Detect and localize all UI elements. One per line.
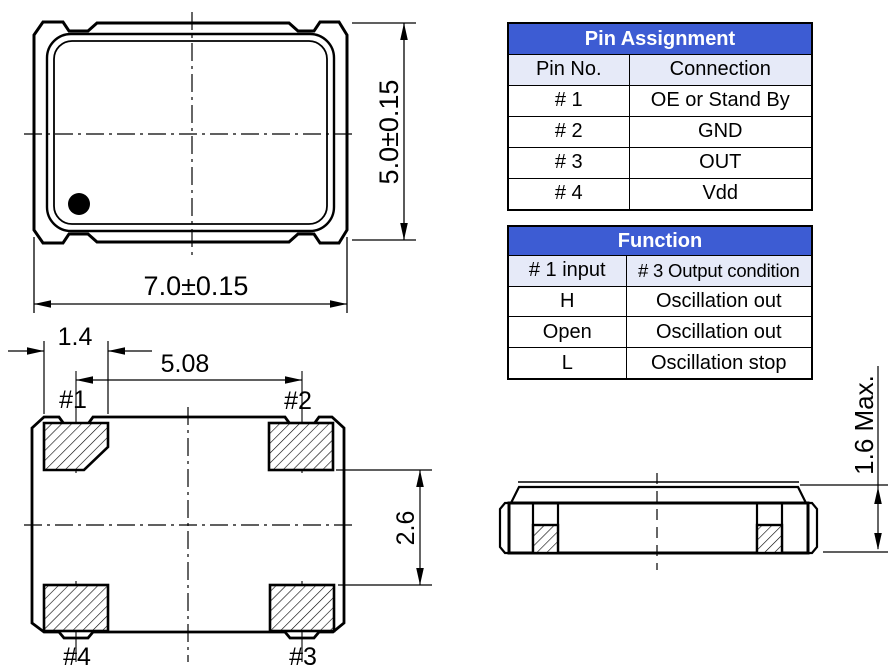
connection-cell: GND [629,116,812,147]
dim-pitch-label: 5.08 [161,350,210,378]
pin-no-cell: # 2 [508,116,629,147]
table-row: Open Oscillation out [508,317,812,348]
input-cell: L [508,348,626,379]
output-cell: Oscillation stop [626,348,812,379]
side-view-drawing: 1.6 Max. [470,355,891,671]
output-cell: Oscillation out [626,286,812,317]
table-row: # 2 GND [508,116,812,147]
arrow-down [874,533,882,550]
table-row: # 1 OE or Stand By [508,85,812,116]
table-row: # 3 OUT [508,147,812,178]
arrow-right [285,376,302,384]
arrow-down [416,568,424,585]
connection-cell: OUT [629,147,812,178]
top-view-drawing: 7.0±0.15 5.0±0.15 [0,0,470,320]
arrow-left [76,376,93,384]
lid-outer-line [47,34,334,231]
dim-width-label: 7.0±0.15 [144,271,249,301]
arrow-right [27,347,44,355]
dim-height-label: 5.0±0.15 [374,80,404,185]
pin-assignment-table: Pin Assignment Pin No. Connection # 1 OE… [507,22,813,211]
pad-2 [269,423,333,470]
arrow-left [108,347,125,355]
output-col-header: # 3 Output condition [626,256,812,287]
dim-thickness-label: 1.6 Max. [849,375,879,475]
terminal-pad-right [757,525,782,553]
input-col-header: # 1 input [508,256,626,287]
pad-1 [44,423,108,470]
pad4-label: #4 [63,643,91,671]
input-cell: Open [508,317,626,348]
pad-centerlines [76,371,302,662]
table-row: # 4 Vdd [508,178,812,210]
pin-col-header: Pin No. [508,55,629,86]
lid-inner-line [54,41,327,224]
pin-no-cell: # 4 [508,178,629,210]
table-row: H Oscillation out [508,286,812,317]
pad-3 [270,585,334,631]
pad-4 [44,585,108,631]
function-table: Function # 1 input # 3 Output condition … [507,225,813,380]
connection-col-header: Connection [629,55,812,86]
arrow-down [400,223,408,240]
bottom-view-drawing: #1 #2 #3 #4 1.4 5.08 2.6 [0,320,470,671]
input-cell: H [508,286,626,317]
connection-cell: OE or Stand By [629,85,812,116]
arrow-left [34,300,51,308]
dim-pad-row-label: 2.6 [392,511,420,546]
pin-no-cell: # 1 [508,85,629,116]
connection-cell: Vdd [629,178,812,210]
pin1-index-dot [68,193,90,215]
pad2-label: #2 [284,387,312,415]
arrow-up [400,23,408,40]
arrow-up [416,470,424,487]
lid-profile [511,487,806,503]
pin-table-title: Pin Assignment [508,23,812,55]
terminal-pad-left [533,525,558,553]
arrow-right [330,300,347,308]
output-cell: Oscillation out [626,317,812,348]
arrow-up [874,487,882,504]
table-row: L Oscillation stop [508,348,812,379]
function-table-title: Function [508,226,812,256]
pad1-label: #1 [59,386,87,414]
dim-pad-width-label: 1.4 [58,323,93,351]
datasheet-page: 7.0±0.15 5.0±0.15 [0,0,891,671]
pin-no-cell: # 3 [508,147,629,178]
pad3-label: #3 [289,643,317,671]
